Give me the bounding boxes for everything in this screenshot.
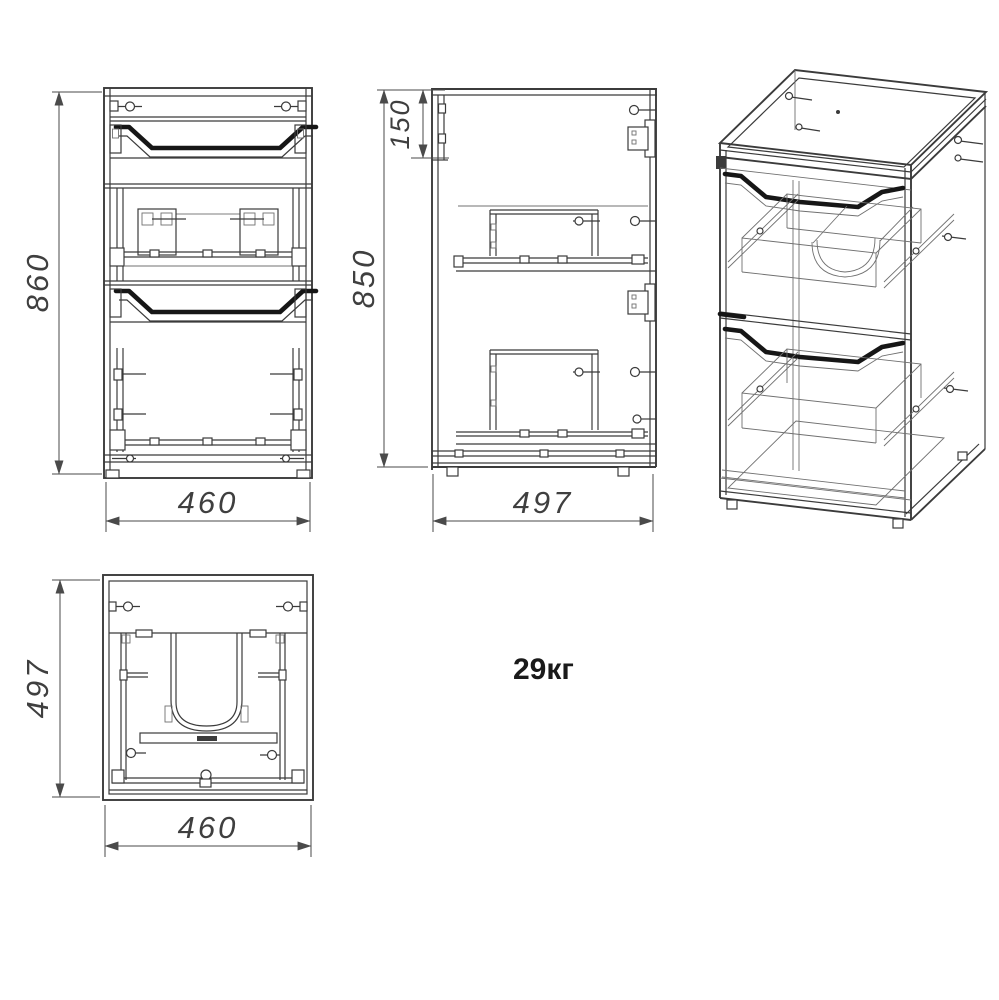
iso-top-panel [720, 70, 986, 179]
cabinet-technical-drawing: 860 460 [0, 0, 999, 1000]
side-plinth [432, 450, 656, 476]
iso-upper-drawer [720, 168, 954, 288]
isometric-view-drawing [716, 70, 986, 528]
dimension-side-depth: 497 [433, 474, 653, 532]
side-drawer-front-strip [432, 95, 448, 160]
iso-lower-drawer [725, 329, 954, 446]
technical-drawing-sheet: 860 460 [0, 0, 999, 1000]
dimension-front-width: 460 [106, 482, 310, 532]
front-right-foot [297, 470, 310, 478]
top-back-bolts [109, 602, 307, 611]
side-rear-hardware [628, 106, 656, 322]
side-rear-foot [618, 467, 629, 476]
top-side-pins [120, 670, 286, 760]
side-view-drawing [432, 88, 657, 476]
front-height-label: 860 [20, 252, 55, 313]
front-lower-drawer-handle [110, 289, 316, 321]
front-width-label: 460 [178, 485, 239, 520]
top-siphon-cutout [165, 633, 248, 731]
weight-label: 29кг [513, 653, 574, 686]
side-front-foot [447, 467, 458, 476]
front-plinth [104, 455, 312, 478]
front-upper-drawer-box [110, 188, 306, 281]
top-front-band [109, 770, 307, 790]
dimension-front-height: 860 [20, 92, 102, 474]
side-lower-drawer-box [456, 350, 656, 444]
front-view-drawing [104, 88, 316, 478]
front-top-bolts [110, 101, 306, 111]
side-upper-drawer-box [454, 206, 656, 271]
top-width-label: 460 [178, 810, 239, 845]
top-view-drawing [103, 575, 313, 800]
side-height-label: 850 [346, 248, 381, 309]
dimension-top-width: 460 [105, 805, 311, 857]
top-depth-label: 497 [20, 658, 55, 719]
front-lower-drawer-box [110, 348, 306, 452]
side-depth-label: 497 [513, 485, 574, 520]
dimension-top-depth: 497 [20, 580, 100, 797]
side-drawer-front-label: 150 [385, 98, 415, 149]
top-crossbar [140, 733, 277, 743]
front-left-foot [106, 470, 119, 478]
front-upper-drawer-handle [110, 125, 316, 157]
